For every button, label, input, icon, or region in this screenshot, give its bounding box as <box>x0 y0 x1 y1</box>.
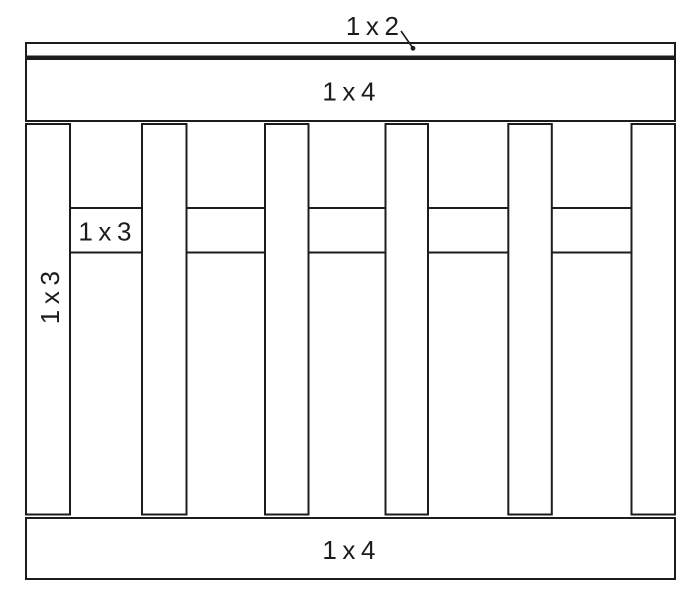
svg-text:1 x 3: 1 x 3 <box>35 271 65 324</box>
svg-text:1 x 2: 1 x 2 <box>346 11 399 41</box>
svg-text:1 x 4: 1 x 4 <box>322 77 375 107</box>
svg-text:1 x 3: 1 x 3 <box>78 217 131 247</box>
svg-text:1 x 4: 1 x 4 <box>322 535 375 565</box>
